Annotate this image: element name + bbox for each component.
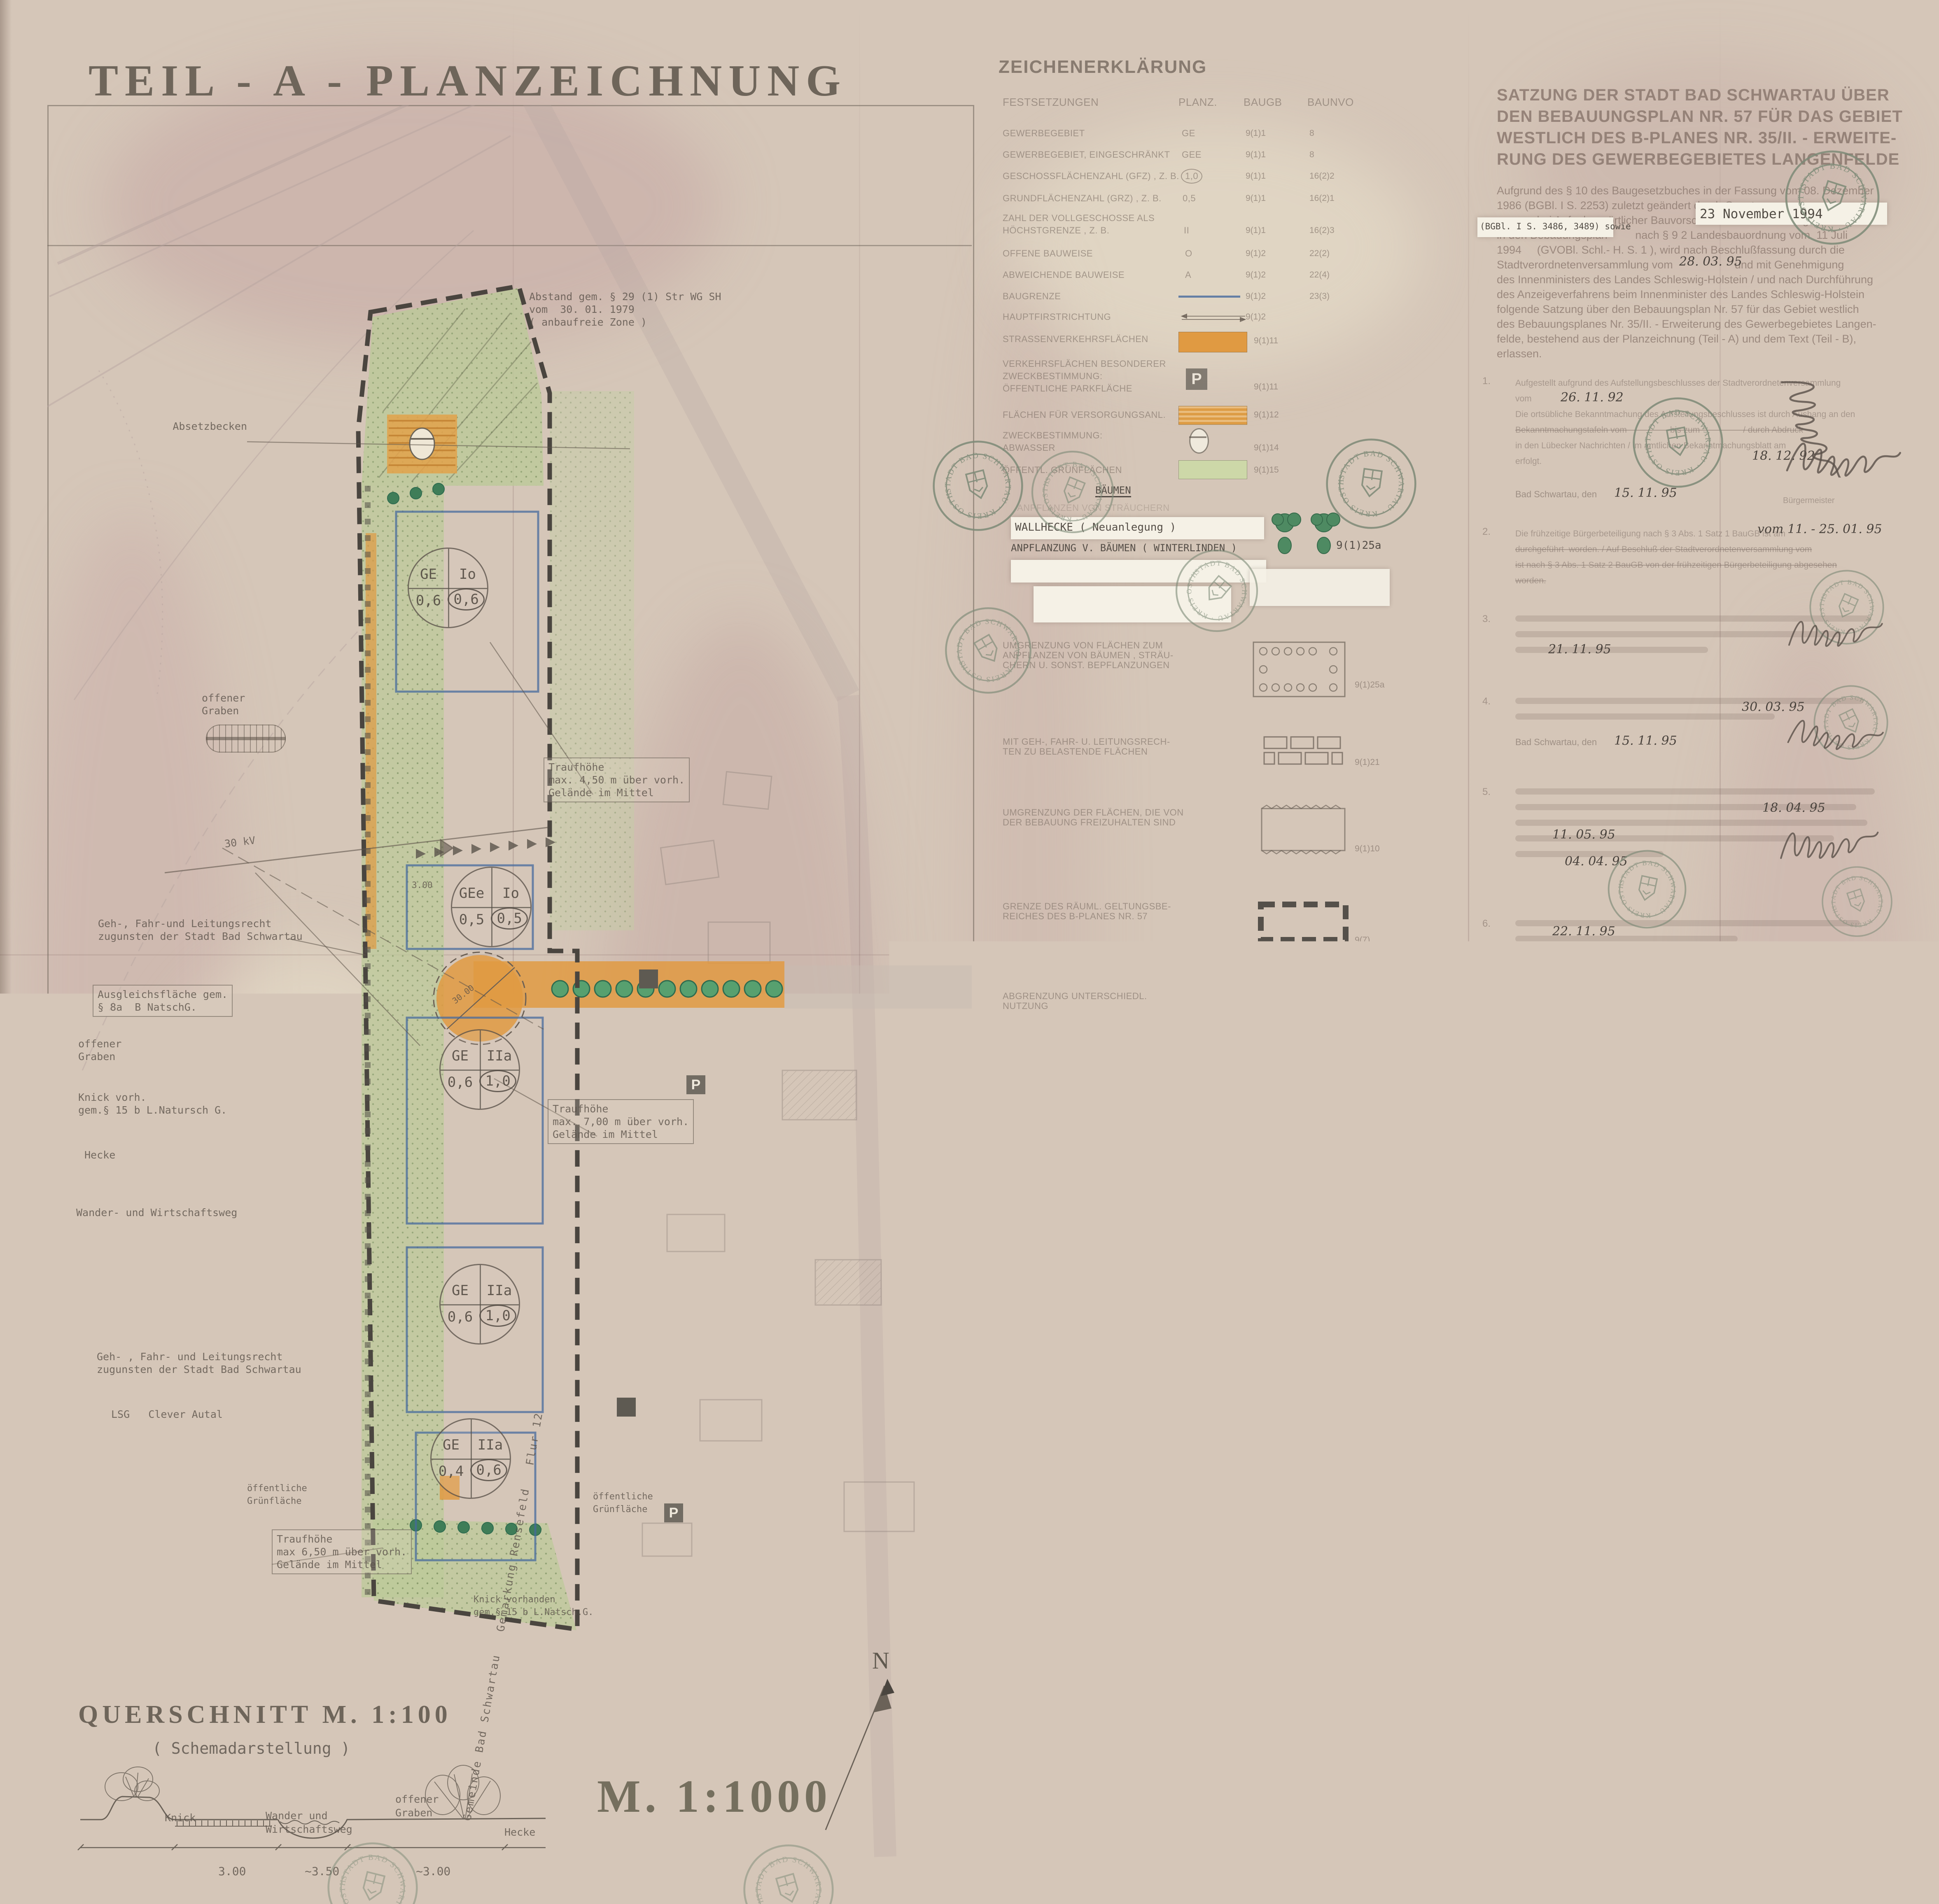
legend-wallhecke-ref: 9(1)25a: [1336, 540, 1381, 551]
legend-row-label: BAUGRENZE: [1003, 291, 1061, 301]
verfahren-text-line: ist auf die Geltendmachung der Verletzun…: [1515, 1700, 1863, 1713]
legend-symbol-geltungsbereich: [1256, 900, 1351, 945]
verfahren-e12-body: Die Durchführung des Anzeigeverfahrens z…: [1515, 1649, 1863, 1751]
signature: [1779, 1054, 1886, 1095]
symbol-gepl-grenzen: [1252, 1337, 1344, 1338]
legend-col-planz: PLANZ.: [1178, 97, 1217, 107]
verfahren-text-line: bis zum ) ortsüblich bekanntgemacht word…: [1515, 1687, 1863, 1700]
verfahren-num: 4.: [1482, 696, 1491, 707]
teil-b-line: zulässig:: [1025, 1573, 1370, 1583]
legend-row-label: FLÄCHEN FÜR VERSORGUNGSANL.: [1003, 410, 1166, 420]
verfahren-num: 2.: [1482, 526, 1491, 538]
city-seal-stamp: [943, 605, 1034, 696]
teil-b-s4-heading: 4. NICHT-ÜBERBAUBARE FLÄCHEN (§ 9 Abs. 1…: [1007, 1824, 1260, 1833]
label-line: gem.§ 15 b L.Natursch G.: [78, 1104, 227, 1116]
handwritten-date: vom 11. - 25. 01. 95: [1757, 522, 1882, 536]
verfahren-text-struck: durchgeführt worden. / Auf Beschluß der …: [1515, 542, 1812, 557]
legend-row-label: ÖFFENTLICHE PARKFLÄCHE: [1003, 384, 1132, 394]
handwritten-date: 11. 05. 95: [1552, 827, 1615, 842]
legend-line: UMGRENZUNG VON FLÄCHEN FÜR MAßNAHMEN: [1003, 1032, 1253, 1049]
satzung-intro-line: des Bebauungsplanes Nr. 35/II. - Erweite…: [1497, 317, 1876, 331]
legend-ref: 9(1)2: [1246, 312, 1266, 322]
teil-b-line: Dachgestaltung:: [1363, 1589, 1505, 1598]
qs-label-weg1: Wander und: [266, 1809, 328, 1822]
legend-ref: 23(3): [1309, 291, 1330, 301]
city-label: Bad Schwartau, den: [1515, 1136, 1597, 1147]
legend-line: GRENZE DES RÄUML. GELTUNGSBE-: [1003, 902, 1171, 911]
darstellungen-row: QUERSCHNITT: [1003, 1265, 1070, 1275]
legend-symbol-baugrenze: [1178, 296, 1240, 298]
geaendert-text: Geändert gem . Erlaß des Innenministers …: [1040, 1760, 1291, 1806]
label-line: zugunsten der Stadt Bad Schwartau: [98, 930, 303, 943]
legend-row-label: VERKEHRSFLÄCHEN BESONDERER: [1003, 359, 1166, 369]
legend-ref: 9(1)1: [1246, 226, 1266, 235]
handwritten-date: 04. 04. 95: [1569, 1245, 1632, 1260]
symbol-110kv: [1252, 1185, 1346, 1197]
city-seal-stamp: [1808, 980, 1886, 1058]
label-traufhoehe-2: Traufhöhemax. 7,00 m über vorh.Gelände i…: [548, 1099, 694, 1144]
city-seal-stamp: [741, 1842, 836, 1904]
label-line: max 6,50 m über vorh.: [277, 1545, 407, 1558]
legend-symbol-gfz-circle: 1,0: [1181, 169, 1202, 184]
handwritten-beschluss-datum: 28. 03. 95: [1679, 254, 1742, 269]
handwritten-date: 05. 01. 1995: [1641, 949, 1720, 963]
city-label: Bad Schwartau, den: [1515, 1400, 1597, 1410]
label-abstand: Abstand gem. § 29 (1) Str WG SHvom 30. 0…: [529, 290, 721, 329]
teil-b-line: gleichsfläche werden den Grundstücksfläc…: [1355, 1825, 1619, 1833]
teil-b-line: - Bei gewerblich genutzten Gebäuden sind…: [1355, 1758, 1631, 1766]
label-line: max. 7,00 m über vorh.: [553, 1115, 689, 1128]
verfahren-text-line: wiesen worden. Die Satzung ist mithin am…: [1515, 1738, 1863, 1751]
darstellungen-title: DARSTELLUNGEN OHNE NORMCHARAKTER: [1003, 1140, 1321, 1156]
scale-text: M. 1:1000: [597, 1770, 831, 1823]
darstellungen-row: VORH. GRUNDSTÜCKSGRENZEN: [1003, 1304, 1153, 1314]
verfahren-text: (Teil - B), wird hiermit ausgefertigt.: [1515, 1545, 1649, 1559]
legend-abgrenzung: ABGRENZUNG UNTERSCHIEDL.NUTZUNG: [1003, 991, 1147, 1011]
satzung-intro-line: des Innenministers des Landes Schleswig-…: [1497, 272, 1876, 287]
handwritten-city-date: 15. 11. 95: [1614, 1396, 1677, 1411]
label-offener-graben-1: offener Graben: [202, 692, 245, 717]
graben-symbol: [82, 1301, 162, 1329]
teil-b-line: Pflanzgröße : Jungpflanzen bis leichte H…: [1355, 1800, 1676, 1808]
legend-symbol-anpflanz-box: [1252, 641, 1346, 698]
verfahren-text-line: über den Inhalt Auskunft zu erfahren ist…: [1515, 1674, 1863, 1687]
nutzungsschablone-ge-iia-1: GEIIa 0,61,0: [439, 1029, 520, 1110]
verfahren-num: 8.: [1482, 1095, 1491, 1107]
fold-crease: [1468, 0, 1469, 1904]
label-geh-fahr-leitungsrecht-1: Geh-, Fahr-und Leitungsrechtzugunsten de…: [98, 917, 303, 943]
legend-line: ABGRENZUNG UNTERSCHIEDL.: [1003, 991, 1147, 1001]
label-traufhoehe-3: Traufhöhemax 6,50 m über vorh.Gelände im…: [272, 1529, 412, 1574]
label-line: Traufhöhe: [548, 761, 685, 774]
legend-ref: 9(1)1: [1246, 150, 1266, 160]
teil-b-s7c-body: Pflanzenauswahl und -größen: siehe Knick…: [1355, 1750, 1631, 1774]
legend-symbol-strassenflaeche: [1178, 332, 1247, 352]
legend-ref: 9(1)14: [1254, 443, 1279, 453]
teil-b-s5-body: Firsthöhe max. 12,00 m, gemessen jeweils…: [1363, 1535, 1528, 1553]
teil-b-line: Die Maßnahmen und Anpflanzungen gem. Pkt…: [1355, 1818, 1619, 1825]
signature: [1742, 1589, 1865, 1638]
label-hecke: Hecke: [84, 1149, 115, 1161]
label-line: gem.§ 15 b L.Natsch.G.: [474, 1606, 593, 1619]
legend-ref: 16(2)1: [1309, 193, 1335, 203]
label-absetzbecken: Absetzbecken: [144, 420, 247, 433]
signature: [1734, 1803, 1857, 1853]
legend-symbol-abgrenzung: [1256, 1004, 1351, 1017]
qs-dim-2: 3.00: [218, 1865, 246, 1878]
label-abstand-line: Abstand gem. § 29 (1) Str WG SH: [529, 290, 721, 303]
verfahren-num: 12.: [1479, 1649, 1493, 1660]
verfahren-num: 7.: [1482, 1000, 1491, 1012]
label-traufhoehe-1: Traufhöhemax. 4,50 m über vorh.Gelände i…: [544, 757, 690, 802]
city-label: Bad Schwartau, den: [1515, 1774, 1597, 1785]
legend-ref: 9(1)15: [1254, 465, 1279, 475]
geaendert-line: Schleswig - Holstein vom 29 .Februar 199…: [1040, 1775, 1291, 1791]
teil-a-title: TEIL - A - PLANZEICHNUNG: [89, 56, 847, 107]
handwritten-date: 30. 03. 95: [1742, 700, 1805, 714]
verfahren-num: 3.: [1482, 613, 1491, 625]
satzung-intro-line: folgende Satzung über den Bebauungsplan …: [1497, 302, 1876, 317]
satzung-title-line: DEN BEBAUUNGSPLAN NR. 57 FÜR DAS GEBIET: [1497, 106, 1903, 127]
city-label: Bad Schwartau, den: [1515, 737, 1597, 748]
role-label: Bürgermeister: [1783, 496, 1835, 506]
querschnitt-title: QUERSCHNITT M. 1:100: [78, 1700, 452, 1729]
handwritten-date: 20. 11. 95: [1550, 1420, 1613, 1435]
label-line: Traufhöhe: [553, 1102, 689, 1115]
teil-b-line: Unterirdische Einstellplätze sind auch a…: [1025, 1809, 1388, 1819]
verfahren-num: 10.: [1479, 1350, 1493, 1362]
legend-symbol-abweichende-bauweise: a: [1185, 270, 1191, 280]
verfahren-num: 5.: [1482, 786, 1491, 798]
querschnitt-subtitle: ( Schemadarstellung ): [152, 1739, 350, 1757]
signature: [1771, 1309, 1882, 1352]
handwritten-city-date: 15. 11. 95: [1614, 734, 1677, 748]
scan-edge: [0, 0, 12, 1904]
city-seal-stamp: [1227, 1391, 1318, 1482]
city-seal-stamp: [1029, 449, 1116, 535]
legend-symbol-freizuhalten: [1256, 803, 1351, 856]
legend-row-label: ABWEICHENDE BAUWEISE: [1003, 270, 1125, 280]
legend-ref: 9(1)1: [1246, 128, 1266, 138]
legend-line: ZUM SCHUTZ, ZUR PFLEGE UND ZUR ENTWICKLU…: [1003, 1049, 1253, 1065]
teil-b-line: Gem. § 1 Abs 5 + 9 i. V. m. § 8 BauNVO s…: [1025, 1562, 1370, 1573]
legend-ref: 16(2)3: [1309, 226, 1335, 235]
teil-b-s7-wallhecke: Die geplante Wallhecke: [1355, 1657, 1453, 1668]
legend-row-label: GESCHOSSFLÄCHENZAHL (GFZ) , z. B.: [1003, 171, 1179, 181]
verfahren-text-line: von Mängeln der Abwägung sowie auf die R…: [1515, 1713, 1863, 1725]
legend-symbol-massnahmen: [1252, 1033, 1342, 1093]
handwritten-date: 24. 05. 96: [1734, 1671, 1797, 1686]
teil-b-line: für Außenwandflächen mit einer Breite vo…: [1355, 1766, 1631, 1774]
legend-freizuhalten: UMGRENZUNG DER FLÄCHEN, DIE VONDER BEBAU…: [1003, 808, 1184, 827]
legend-symbol-offene-bauweise: o: [1185, 249, 1192, 259]
legend-col-baunvo: BAUNVO: [1307, 97, 1354, 107]
legend-row-label: HÖCHSTGRENZE , z. B.: [1003, 226, 1109, 235]
nutzungsschablone-ge-io: GEIo 0,60,6: [408, 548, 488, 628]
legend-ref: 8: [1309, 128, 1314, 138]
correction-bgbl: (BGBl. I S. 3486, 3489) sowie: [1480, 221, 1631, 231]
city-label: Bad Schwartau, den: [1515, 489, 1597, 500]
city-seal-stamp: [1820, 865, 1894, 939]
flurstueck-value: 952/1: [1254, 1380, 1276, 1390]
label-dim-300: 3.00: [412, 879, 433, 892]
legend-row-label: ZAHL DER VOLLGESCHOSSE ALS: [1003, 213, 1155, 223]
teil-b-line: Alle Flächen, die nicht von baul. Anlage…: [1025, 1835, 1332, 1844]
city-seal-stamp: [1655, 1558, 1746, 1649]
handwritten-city-date: 15. 11. 95: [1614, 1133, 1677, 1147]
satzung-intro-line: des Anzeigeverfahrens beim Innenminister…: [1497, 287, 1876, 302]
qs-label-weg2: Wirtschaftsweg: [266, 1823, 352, 1836]
legend-col-baugb: BAUGB: [1244, 97, 1282, 107]
legend-symbol-grz: 0,5: [1183, 193, 1196, 203]
legend-ref: 9(1)2: [1246, 291, 1266, 301]
city-seal-stamp: [1606, 848, 1688, 930]
legend-ref: 9(1)21: [1355, 757, 1380, 767]
legend-symbol-versorgung: [1178, 406, 1247, 425]
verfahren-text-line: weiter auf Fälligkeit und Erlöschen von …: [1515, 1725, 1863, 1738]
teil-b-line: Pflanzenauswahl und -größen: siehe Knick: [1355, 1750, 1631, 1758]
city-seal-stamp: [931, 438, 1025, 533]
legend-symbol-abwasser-line: [1189, 436, 1206, 438]
legend-symbol-gee: GEe: [1182, 150, 1202, 160]
handwritten-date: 05. 01. 1995: [1606, 1008, 1685, 1022]
legend-ref: 22(4): [1309, 270, 1330, 280]
legend-symbol-ge: GE: [1182, 128, 1195, 138]
handwritten-date: 18. 04. 95: [1762, 801, 1825, 815]
teil-b-s7-heading: 7. GRÜNORDNERISCHE MASSNAHMEN (§ 9 Abs. …: [1355, 1624, 1524, 1643]
label-line: Gelände im Mittel: [553, 1128, 689, 1141]
legend-row-label: GEWERBEGEBIET, EINGESCHRÄNKT: [1003, 150, 1170, 160]
legend-symbol-vollgeschosse: II: [1184, 226, 1189, 235]
signature: [1779, 1210, 1886, 1251]
signature: [1775, 823, 1886, 867]
legend-line: MIT GEH-, FAHR- U. LEITUNGSRECH-: [1003, 737, 1170, 747]
legend-ref: 9(1)12: [1254, 410, 1279, 420]
city-seal-stamp: [1260, 1618, 1351, 1708]
verfahren-num: 11.: [1479, 1531, 1493, 1542]
parking-p-label: P: [664, 1503, 683, 1522]
verfahren-text: Die frühzeitige Bürgerbeteiligung nach §…: [1515, 526, 1785, 542]
city-seal-stamp: [1643, 1783, 1738, 1877]
legend-ref: 9(1)25a: [1355, 680, 1384, 690]
teil-b-line: oder Flachdach: [1363, 1607, 1505, 1616]
handwritten-note: 16a: [1783, 1029, 1806, 1044]
darstellungen-row: GEPL. GRUNDSTÜCKSGRENZEN: [1003, 1332, 1151, 1342]
legend-line: UMGRENZUNG DER FLÄCHEN, DIE VON: [1003, 808, 1184, 818]
legend-ref: 9(1)11: [1254, 336, 1278, 346]
scanned-plan-sheet: STADT BAD SCHWARTAU · KREIS OSTHOLSTEIN …: [0, 0, 1939, 1904]
legend-ref: 8: [1309, 150, 1314, 160]
label-abstand-line: vom 30. 01. 1979: [529, 303, 721, 316]
label-ausgleichsflaeche: Ausgleichsfläche gem.§ 8a B NatschG.: [93, 985, 233, 1017]
legend-row-label: ZWECKBESTIMMUNG:: [1003, 371, 1103, 381]
symbol-graben: [1252, 1219, 1344, 1243]
city-seal-stamp: [955, 1383, 1050, 1478]
legend-line: NUTZUNG: [1003, 1001, 1147, 1011]
teil-b-s6-heading: 6. ÄUSSERE GESTALTUNG DER BAUL. ANLAGEN …: [1355, 1564, 1524, 1583]
nutzungsschablone-gee-io: GEeIo 0,50,5: [451, 867, 532, 947]
legend-symbol-firstrichtung: [1178, 313, 1248, 323]
satzung-intro-line: felde, bestehend aus der Planzeichnung (…: [1497, 331, 1876, 346]
geaendert-line: Az . : IV 810 b - 512 . 113 - 55.4 (57) …: [1040, 1791, 1291, 1806]
legend-col-festsetzungen: FESTSETZUNGEN: [1003, 97, 1099, 107]
verfahren-text-line: Plan auf Dauer während der Dienststunden…: [1515, 1662, 1863, 1674]
legend-symbol-parkflaeche: P: [1186, 368, 1207, 390]
label-line: Traufhöhe: [277, 1533, 407, 1545]
graben-symbol: [206, 725, 286, 753]
teil-b-s7d-body: - Zuordnung der Ausgleichs- und Ersatzma…: [1355, 1810, 1619, 1841]
teil-b-s6-body: Dachgestaltung:Geneigtes Dach bis max. 4…: [1363, 1589, 1505, 1616]
city-seal-stamp: [1606, 1268, 1692, 1354]
parking-symbols: [617, 969, 658, 1417]
handwritten-date: 28. 04. 96: [1742, 1446, 1805, 1460]
teil-b-s7-heading-handwritten: + § 8a Abs. 1 Satz 4 BNatSchG.: [1355, 1645, 1489, 1656]
label-wander-wirtschaftsweg: Wander- und Wirtschaftsweg: [76, 1206, 237, 1219]
verfahren-text-line: Die Durchführung des Anzeigeverfahrens z…: [1515, 1649, 1863, 1662]
legend-ref: 9(1)10: [1355, 844, 1380, 854]
teil-b-s1-heading: 1. ART DER BAUL. NUTZUNG (§ 9 Abs. 1 Nr.…: [1007, 1548, 1240, 1559]
handwritten-date: 25. 05. 96: [1709, 1735, 1772, 1750]
signature: [1783, 613, 1890, 655]
city-seal-stamp: [325, 1840, 420, 1904]
legend-grenze: GRENZE DES RÄUML. GELTUNGSBE-REICHES DES…: [1003, 902, 1171, 921]
label-line: Geh- , Fahr- und Leitungsrecht: [97, 1350, 301, 1363]
legend-ref: 9(7): [1355, 935, 1370, 945]
city-seal-stamp: [1631, 395, 1725, 490]
darstellungen-row: GRABEN: [1003, 1225, 1042, 1235]
label-knick-vorh: Knick vorh.gem.§ 15 b L.Natursch G.: [78, 1091, 227, 1116]
city-label: Bad Schwartau, den: [1515, 1297, 1597, 1307]
label-line: Geh-, Fahr-und Leitungsrecht: [98, 917, 303, 930]
qs-label-graben2: Graben: [395, 1806, 432, 1819]
verfahren-text-struck: worden.: [1515, 573, 1546, 589]
city-label: Bad Schwartau, den: [1515, 1612, 1597, 1622]
city-seal-stamp: [1174, 548, 1260, 634]
city-seal-stamp: [996, 1671, 1091, 1766]
signature: [1783, 436, 1906, 486]
label-line: max. 4,50 m über vorh.: [548, 774, 685, 786]
legend-row-label: STRASSENVERKEHRSFLÄCHEN: [1003, 334, 1148, 344]
label-line: § 8a B NatschG.: [98, 1001, 228, 1014]
label-gruenflaeche-1: öffentliche Grünfläche: [247, 1482, 307, 1508]
city-label: Bad Schwartau, den: [1515, 1502, 1597, 1512]
legend-ref: 9(1)1: [1246, 171, 1266, 181]
teil-b-title: TEIL - B - TEXT: [1003, 1489, 1228, 1519]
signature: [1783, 943, 1886, 984]
label-line: Gelände im Mittel: [277, 1558, 407, 1571]
legend-ref: 16(2)2: [1309, 171, 1335, 181]
signature: [1783, 716, 1890, 757]
legend-ref: 22(2): [1309, 249, 1330, 259]
legend-ref: 9(1)2: [1246, 249, 1266, 259]
teil-b-s4-body: Alle Flächen, die nicht von baul. Anlage…: [1025, 1835, 1332, 1853]
legend-ref: 16(5)+1(4): [1371, 1004, 1412, 1014]
label-lsg-clever-autal: LSG Clever Autal: [111, 1408, 223, 1421]
satzung-title-line: WESTLICH DES B-PLANES NR. 35/II. - ERWEI…: [1497, 127, 1903, 149]
legend-geh-fahr: MIT GEH-, FAHR- U. LEITUNGSRECH-TEN ZU B…: [1003, 737, 1170, 757]
verfahren-text: erfolgt.: [1515, 454, 1542, 469]
city-seal-stamp: [1324, 436, 1419, 531]
legend-symbol-gruenflaeche: [1178, 460, 1247, 479]
legend-line: REICHES DES B-PLANES NR. 57: [1003, 911, 1171, 921]
legend-symbol-abwasser: [1189, 428, 1209, 454]
city-seal-stamp: [1783, 148, 1882, 247]
teil-b-line: Zufahrten beansprucht werden, sind als V…: [1025, 1844, 1332, 1853]
legend-line: TEN ZU BELASTENDE FLÄCHEN: [1003, 747, 1170, 757]
teil-b-line: - Abstell- und Ausstellungsplätze sowie …: [1025, 1603, 1370, 1614]
label-abstand-line: ( anbaufreie Zone ): [529, 316, 721, 329]
legend-row-label: OFFENE BAUWEISE: [1003, 249, 1093, 259]
symbol-vorh-grenzen: [1252, 1304, 1346, 1315]
qs-dim-1: 2.50: [115, 1865, 143, 1878]
legend-ref: 9(1)2: [1246, 270, 1266, 280]
label-line: zugunsten der Stadt Bad Schwartau: [97, 1363, 301, 1376]
handwritten-date: 18. 04. 95: [1758, 1194, 1821, 1208]
faded-text-bars: [1515, 1097, 1886, 1128]
legend-title: ZEICHENERKLÄRUNG: [999, 57, 1207, 77]
legend-line: DER BEBAUUNG FREIZUHALTEN SIND: [1003, 818, 1184, 827]
legend-ref: 9(1)11: [1254, 382, 1278, 392]
teil-b-line: - Lagerplätze, außer Schrottlagerplätze: [1025, 1593, 1370, 1603]
qs-label-hecke: Hecke: [504, 1826, 535, 1839]
correction-box-trees: [1250, 569, 1390, 606]
handwritten-date: 26. 11. 92: [1561, 390, 1624, 405]
qs-label-graben1: offener: [395, 1793, 439, 1806]
verfahren-text-struck: ist nach § 3 Abs. 1 Satz 2 BauGB von der…: [1515, 557, 1837, 573]
label-geh-fahr-leitungsrecht-2: Geh- , Fahr- und Leitungsrechtzugunsten …: [97, 1350, 301, 1376]
nutzungsschablone-ge-iia-2: GEIIa 0,61,0: [439, 1264, 520, 1345]
parking-p-label: P: [686, 1075, 705, 1094]
legend-massnahmen-ref: 9(1) 20: [1351, 1079, 1396, 1090]
qs-dim-4: ~3.00: [416, 1865, 450, 1878]
label-line: Ausgleichsfläche gem.: [98, 988, 228, 1001]
legend-symbol-belastende-flaechen: [1260, 733, 1351, 770]
geaendert-line: Geändert gem . Erlaß des Innenministers …: [1040, 1760, 1291, 1775]
handwritten-aktenzeichen: IV 810 b - 512. 113 - 55.4 (57): [1705, 1425, 1856, 1437]
teil-b-line: Geneigtes Dach bis max. 45° Dachneigung: [1363, 1598, 1505, 1607]
label-knick-vorhanden: Knick vorhandengem.§ 15 b L.Natsch.G.: [474, 1593, 593, 1619]
teil-b-line: - Zuordnung der Ausgleichs- und Ersatzma…: [1355, 1810, 1619, 1818]
satzung-intro-line: erlassen.: [1497, 346, 1876, 361]
verfahren-num: 1.: [1482, 375, 1491, 387]
label-offener-graben-2: offener Graben: [78, 1037, 121, 1063]
verfahren-num: 6.: [1482, 918, 1491, 930]
teil-b-line: - Lagerhäuser: [1025, 1583, 1370, 1593]
legend-ref: 9(1)1: [1246, 193, 1266, 203]
label-line: Knick vorhanden: [474, 1593, 593, 1606]
verfahren-num: 9.: [1482, 1186, 1491, 1197]
correction-box-s7: [1429, 1790, 1528, 1800]
legend-row-label: GEWERBEGEBIET: [1003, 128, 1085, 138]
teil-b-s8-heading-1: 8. Maßnahmen zum Schutz , zur Pflege und…: [1007, 1857, 1340, 1868]
verfahren-text: vom: [1515, 391, 1532, 407]
qs-label-knick: Knick: [165, 1811, 196, 1824]
legend-row-label: GRUNDFLÄCHENZAHL (GRZ) , z. B.: [1003, 193, 1162, 203]
label-gruenflaeche-2: öffentliche Grünfläche: [593, 1490, 653, 1516]
label-line: Gelände im Mittel: [548, 786, 685, 799]
legend-line: VON NATUR UND LANDSCHAFT.: [1003, 1065, 1253, 1082]
satzung-title-line: SATZUNG DER STADT BAD SCHWARTAU ÜBER: [1497, 84, 1903, 106]
org-label: Stadt Bad Schwartau: [1748, 1573, 1825, 1582]
nutzungsschablone-ge-iia-3: GEIIa 0,40,6: [430, 1418, 511, 1499]
city-seal-stamp: [1602, 1042, 1684, 1124]
north-label: N: [872, 1647, 889, 1674]
symbol-querschnitt: [1252, 1256, 1346, 1284]
label-offener-graben-3: offener Graben: [78, 1268, 121, 1293]
city-seal-stamp: [943, 1112, 1025, 1194]
legend-massnahmen: UMGRENZUNG VON FLÄCHEN FÜR MAßNAHMENZUM …: [1003, 1032, 1253, 1082]
teil-b-s8-heading-2: von Natur und Landschaft (§ 9 Abs. 1 Nr.…: [1025, 1871, 1329, 1882]
